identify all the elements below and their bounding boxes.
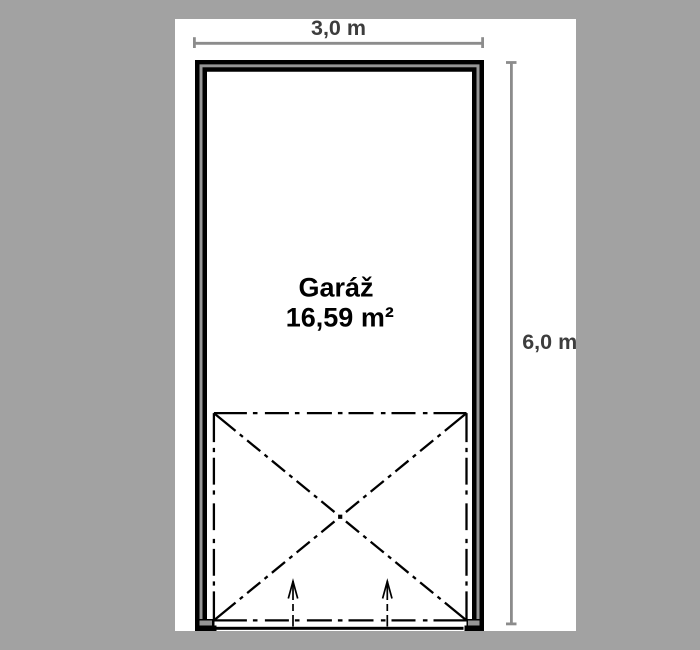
svg-text:16,59 m²: 16,59 m² <box>286 302 394 332</box>
svg-text:3,0 m: 3,0 m <box>311 16 366 40</box>
svg-text:6,0 m: 6,0 m <box>522 330 577 354</box>
svg-text:Garáž: Garáž <box>298 273 373 303</box>
